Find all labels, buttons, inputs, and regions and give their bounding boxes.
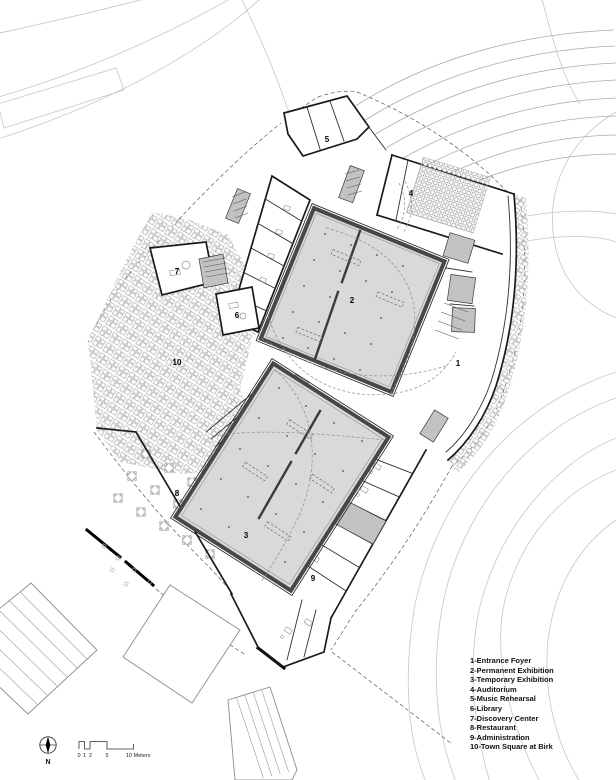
room-label-3: 3	[244, 531, 249, 540]
scale-end-label: 10 Meters	[126, 753, 151, 759]
legend-item-7: 7-Discovery Center	[470, 714, 590, 724]
room-label-6: 6	[235, 311, 240, 320]
room-label-10: 10	[173, 358, 182, 367]
scale-tick-0: 0	[77, 753, 80, 759]
legend-item-5: 5-Music Rehearsal	[470, 694, 590, 704]
room-label-9: 9	[311, 574, 316, 583]
room-label-2: 2	[350, 296, 355, 305]
scale-tick-1: 1	[83, 753, 86, 759]
room-label-8: 8	[175, 489, 180, 498]
room-label-7: 7	[175, 267, 180, 276]
legend-item-9: 9-Administration	[470, 733, 590, 743]
legend: 1-Entrance Foyer 2-Permanent Exhibition …	[470, 656, 590, 752]
legend-item-2: 2-Permanent Exhibition	[470, 666, 590, 676]
legend-item-10: 10-Town Square at Birk	[470, 742, 590, 752]
room-label-4: 4	[409, 189, 414, 198]
legend-item-1: 1-Entrance Foyer	[470, 656, 590, 666]
site-plan-page: 1 2 3 4 5 6 7 8 9 10 N 0 1 2 5 10 Meters…	[0, 0, 616, 780]
legend-item-6: 6-Library	[470, 704, 590, 714]
scale-bar: 0 1 2 5 10 Meters	[77, 742, 150, 760]
scale-tick-5: 5	[105, 753, 108, 759]
legend-item-8: 8-Restaurant	[470, 723, 590, 733]
stair-core	[199, 254, 228, 288]
legend-item-3: 3-Temporary Exhibition	[470, 675, 590, 685]
scale-tick-2: 2	[89, 753, 92, 759]
room-label-5: 5	[325, 135, 330, 144]
room-label-1: 1	[456, 359, 461, 368]
legend-item-4: 4-Auditorium	[470, 685, 590, 695]
north-arrow: N	[40, 737, 56, 767]
north-label: N	[45, 759, 50, 766]
